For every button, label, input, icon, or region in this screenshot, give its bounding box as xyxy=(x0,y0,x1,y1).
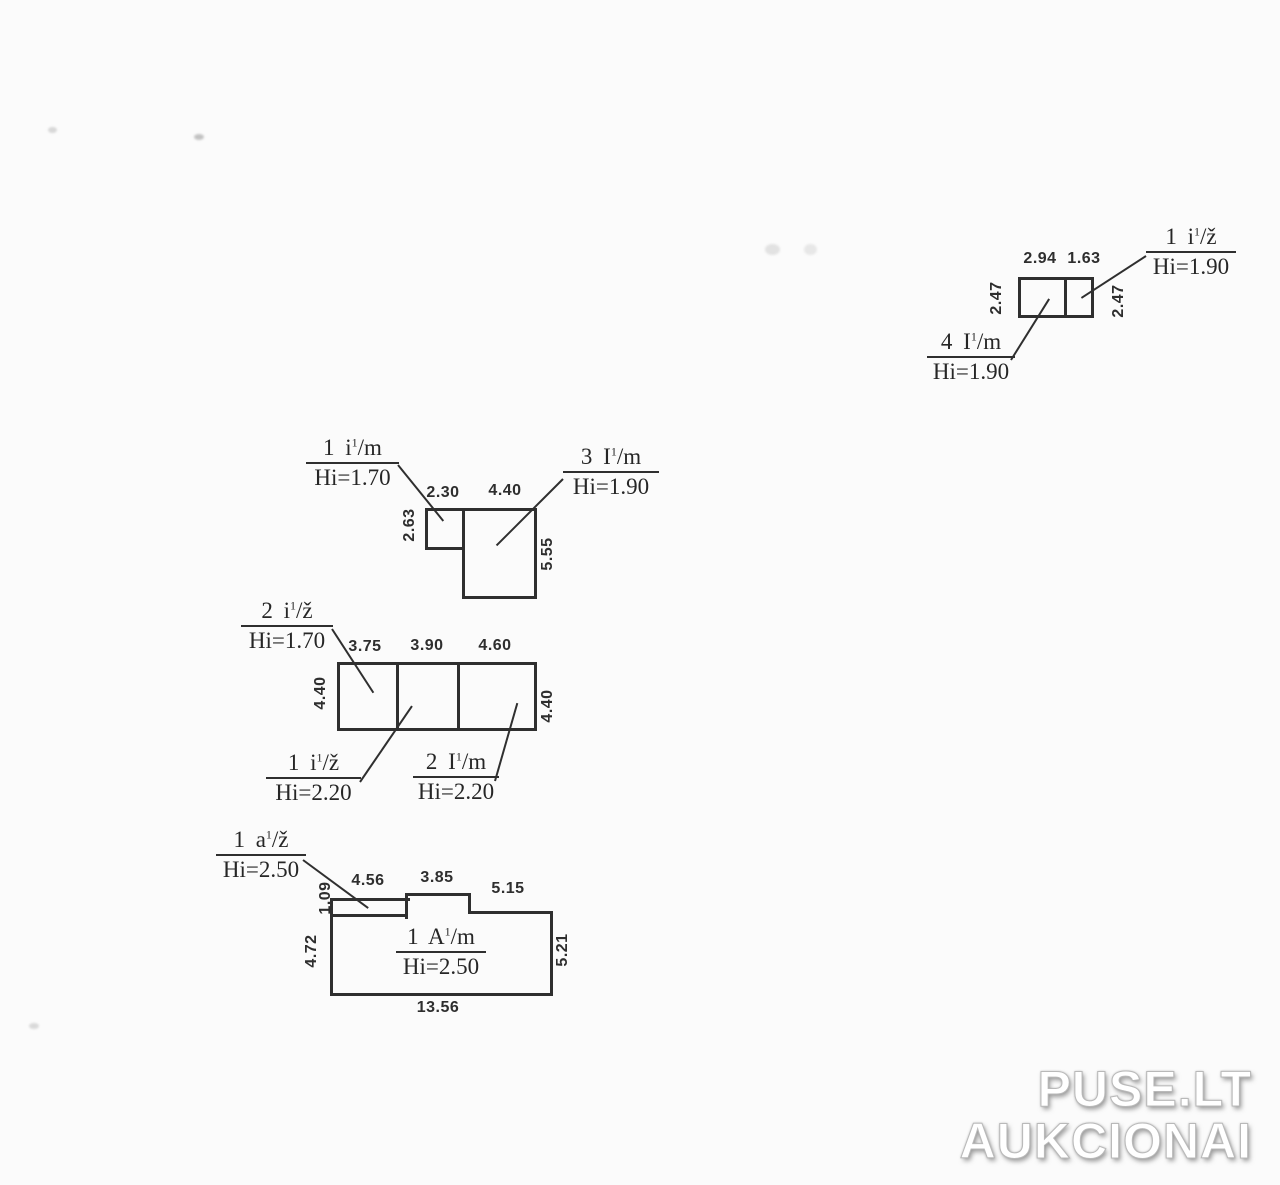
unit-code: 1 a1/ž xyxy=(216,827,306,856)
building2-partition-wall xyxy=(457,662,460,731)
unit-code-text: 2 I xyxy=(426,749,456,774)
dimension-width: 4.60 xyxy=(478,637,511,655)
unit-code: 1 i1/m xyxy=(306,435,399,464)
unit-height-value: Hi=1.90 xyxy=(1146,253,1236,280)
scan-artifact xyxy=(194,134,204,140)
unit-label-1a-z: 1 a1/ž Hi=2.50 xyxy=(216,827,306,883)
dimension-height: 5.55 xyxy=(539,537,557,570)
building3-main-outline xyxy=(462,508,537,599)
unit-label-1i-m: 1 i1/m Hi=1.70 xyxy=(306,435,399,491)
unit-label-2I-m: 2 I1/m Hi=2.20 xyxy=(413,749,499,805)
unit-code: 1 i1/ž xyxy=(266,750,361,779)
unit-code-suffix: /m xyxy=(451,924,475,949)
unit-code-suffix: /ž xyxy=(1200,224,1217,249)
main-right-wall xyxy=(550,911,553,996)
dimension-height: 1.09 xyxy=(317,881,335,914)
unit-code: 4 I1/m xyxy=(927,329,1015,358)
unit-code-text: 1 a xyxy=(233,827,265,852)
watermark: PUSE.LT AUKCIONAI xyxy=(960,1063,1252,1167)
unit-code-text: 3 I xyxy=(581,444,611,469)
dimension-width: 4.56 xyxy=(351,872,384,890)
watermark-line2: AUKCIONAI xyxy=(960,1115,1252,1167)
unit-height-value: Hi=2.20 xyxy=(266,779,361,806)
unit-code-text: 1 i xyxy=(1165,224,1194,249)
dimension-height: 2.47 xyxy=(1110,284,1128,317)
dimension-height: 5.21 xyxy=(554,933,572,966)
unit-height-value: Hi=2.20 xyxy=(413,778,499,805)
scan-artifact xyxy=(804,244,817,255)
main-right-top-wall xyxy=(468,911,553,914)
unit-label-3I-m: 3 I1/m Hi=1.90 xyxy=(563,444,659,500)
watermark-line1: PUSE.LT xyxy=(960,1063,1252,1115)
dimension-width: 5.15 xyxy=(491,880,524,898)
scan-artifact xyxy=(29,1023,39,1029)
dimension-width: 4.40 xyxy=(488,482,521,500)
unit-code: 1 A1/m xyxy=(396,924,486,953)
main-strip-top-wall xyxy=(330,898,410,901)
unit-code-text: 1 A xyxy=(407,924,445,949)
scan-artifact xyxy=(765,244,780,255)
dimension-width: 13.56 xyxy=(417,999,460,1017)
unit-height-value: Hi=1.90 xyxy=(563,473,659,500)
unit-label-4I-m: 4 I1/m Hi=1.90 xyxy=(927,329,1015,385)
unit-code: 2 I1/m xyxy=(413,749,499,778)
unit-label-1A-m: 1 A1/m Hi=2.50 xyxy=(396,924,486,980)
dimension-height: 4.40 xyxy=(539,689,557,722)
unit-code-text: 2 i xyxy=(261,598,290,623)
main-strip-divider-wall xyxy=(330,914,408,917)
unit-code-text: 1 i xyxy=(288,750,317,775)
unit-code-suffix: /m xyxy=(977,329,1001,354)
unit-height-value: Hi=1.90 xyxy=(927,358,1015,385)
unit-height-value: Hi=2.50 xyxy=(396,953,486,980)
unit-height-value: Hi=2.50 xyxy=(216,856,306,883)
unit-code-suffix: /m xyxy=(358,435,382,460)
unit-code-suffix: /m xyxy=(462,749,486,774)
main-mid-top-wall xyxy=(405,893,471,896)
unit-code-suffix: /m xyxy=(617,444,641,469)
unit-height-value: Hi=1.70 xyxy=(306,464,399,491)
dimension-height: 4.72 xyxy=(303,934,321,967)
scan-artifact xyxy=(48,127,57,133)
dimension-width: 3.75 xyxy=(348,638,381,656)
unit-code-suffix: /ž xyxy=(272,827,289,852)
dimension-width: 3.85 xyxy=(420,869,453,887)
dimension-height: 4.40 xyxy=(312,676,330,709)
unit-code-suffix: /ž xyxy=(296,598,313,623)
unit-label-1i-z2: 1 i1/ž Hi=2.20 xyxy=(266,750,361,806)
building3-annex-outline xyxy=(425,508,465,550)
dimension-height: 2.47 xyxy=(988,281,1006,314)
unit-code: 2 i1/ž xyxy=(241,598,333,627)
dimension-width: 2.30 xyxy=(426,484,459,502)
building4-partition-wall xyxy=(1064,277,1067,318)
building2-outline xyxy=(337,662,537,731)
dimension-width: 3.90 xyxy=(410,637,443,655)
unit-code-text: 4 I xyxy=(941,329,971,354)
scanned-plan-sheet: 2.94 1.63 2.47 2.47 1 i1/ž Hi=1.90 4 I1/… xyxy=(0,0,1280,1185)
building2-partition-wall xyxy=(396,662,399,731)
dimension-width: 2.94 xyxy=(1023,250,1056,268)
unit-code-text: 1 i xyxy=(323,435,352,460)
unit-code: 3 I1/m xyxy=(563,444,659,473)
unit-label-2i-z: 2 i1/ž Hi=1.70 xyxy=(241,598,333,654)
unit-label-1i-z: 1 i1/ž Hi=1.90 xyxy=(1146,224,1236,280)
dimension-height: 2.63 xyxy=(401,508,419,541)
unit-code-suffix: /ž xyxy=(323,750,340,775)
unit-height-value: Hi=1.70 xyxy=(241,627,333,654)
unit-code: 1 i1/ž xyxy=(1146,224,1236,253)
main-bottom-wall xyxy=(330,993,553,996)
dimension-width: 1.63 xyxy=(1067,250,1100,268)
